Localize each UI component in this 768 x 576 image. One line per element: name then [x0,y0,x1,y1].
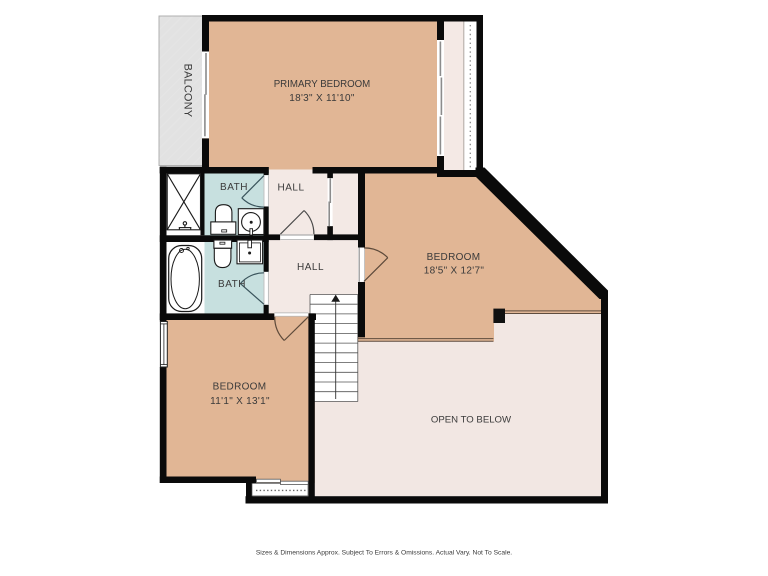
svg-text:HALL: HALL [277,183,304,194]
svg-text:BATH: BATH [220,182,248,193]
svg-text:PRIMARY BEDROOM: PRIMARY BEDROOM [274,79,371,90]
svg-text:11'1" X 13'1": 11'1" X 13'1" [210,396,270,407]
svg-text:OPEN TO BELOW: OPEN TO BELOW [431,415,512,426]
svg-text:18'3" X 11'10": 18'3" X 11'10" [289,93,355,104]
svg-text:BEDROOM: BEDROOM [213,382,267,393]
svg-text:BEDROOM: BEDROOM [427,252,481,263]
svg-text:18'5" X 12'7": 18'5" X 12'7" [424,266,485,277]
svg-text:BALCONY: BALCONY [181,64,193,118]
svg-text:HALL: HALL [297,262,324,273]
svg-text:Sizes & Dimensions Approx. Sub: Sizes & Dimensions Approx. Subject To Er… [256,550,512,557]
svg-text:BATH: BATH [218,279,246,290]
